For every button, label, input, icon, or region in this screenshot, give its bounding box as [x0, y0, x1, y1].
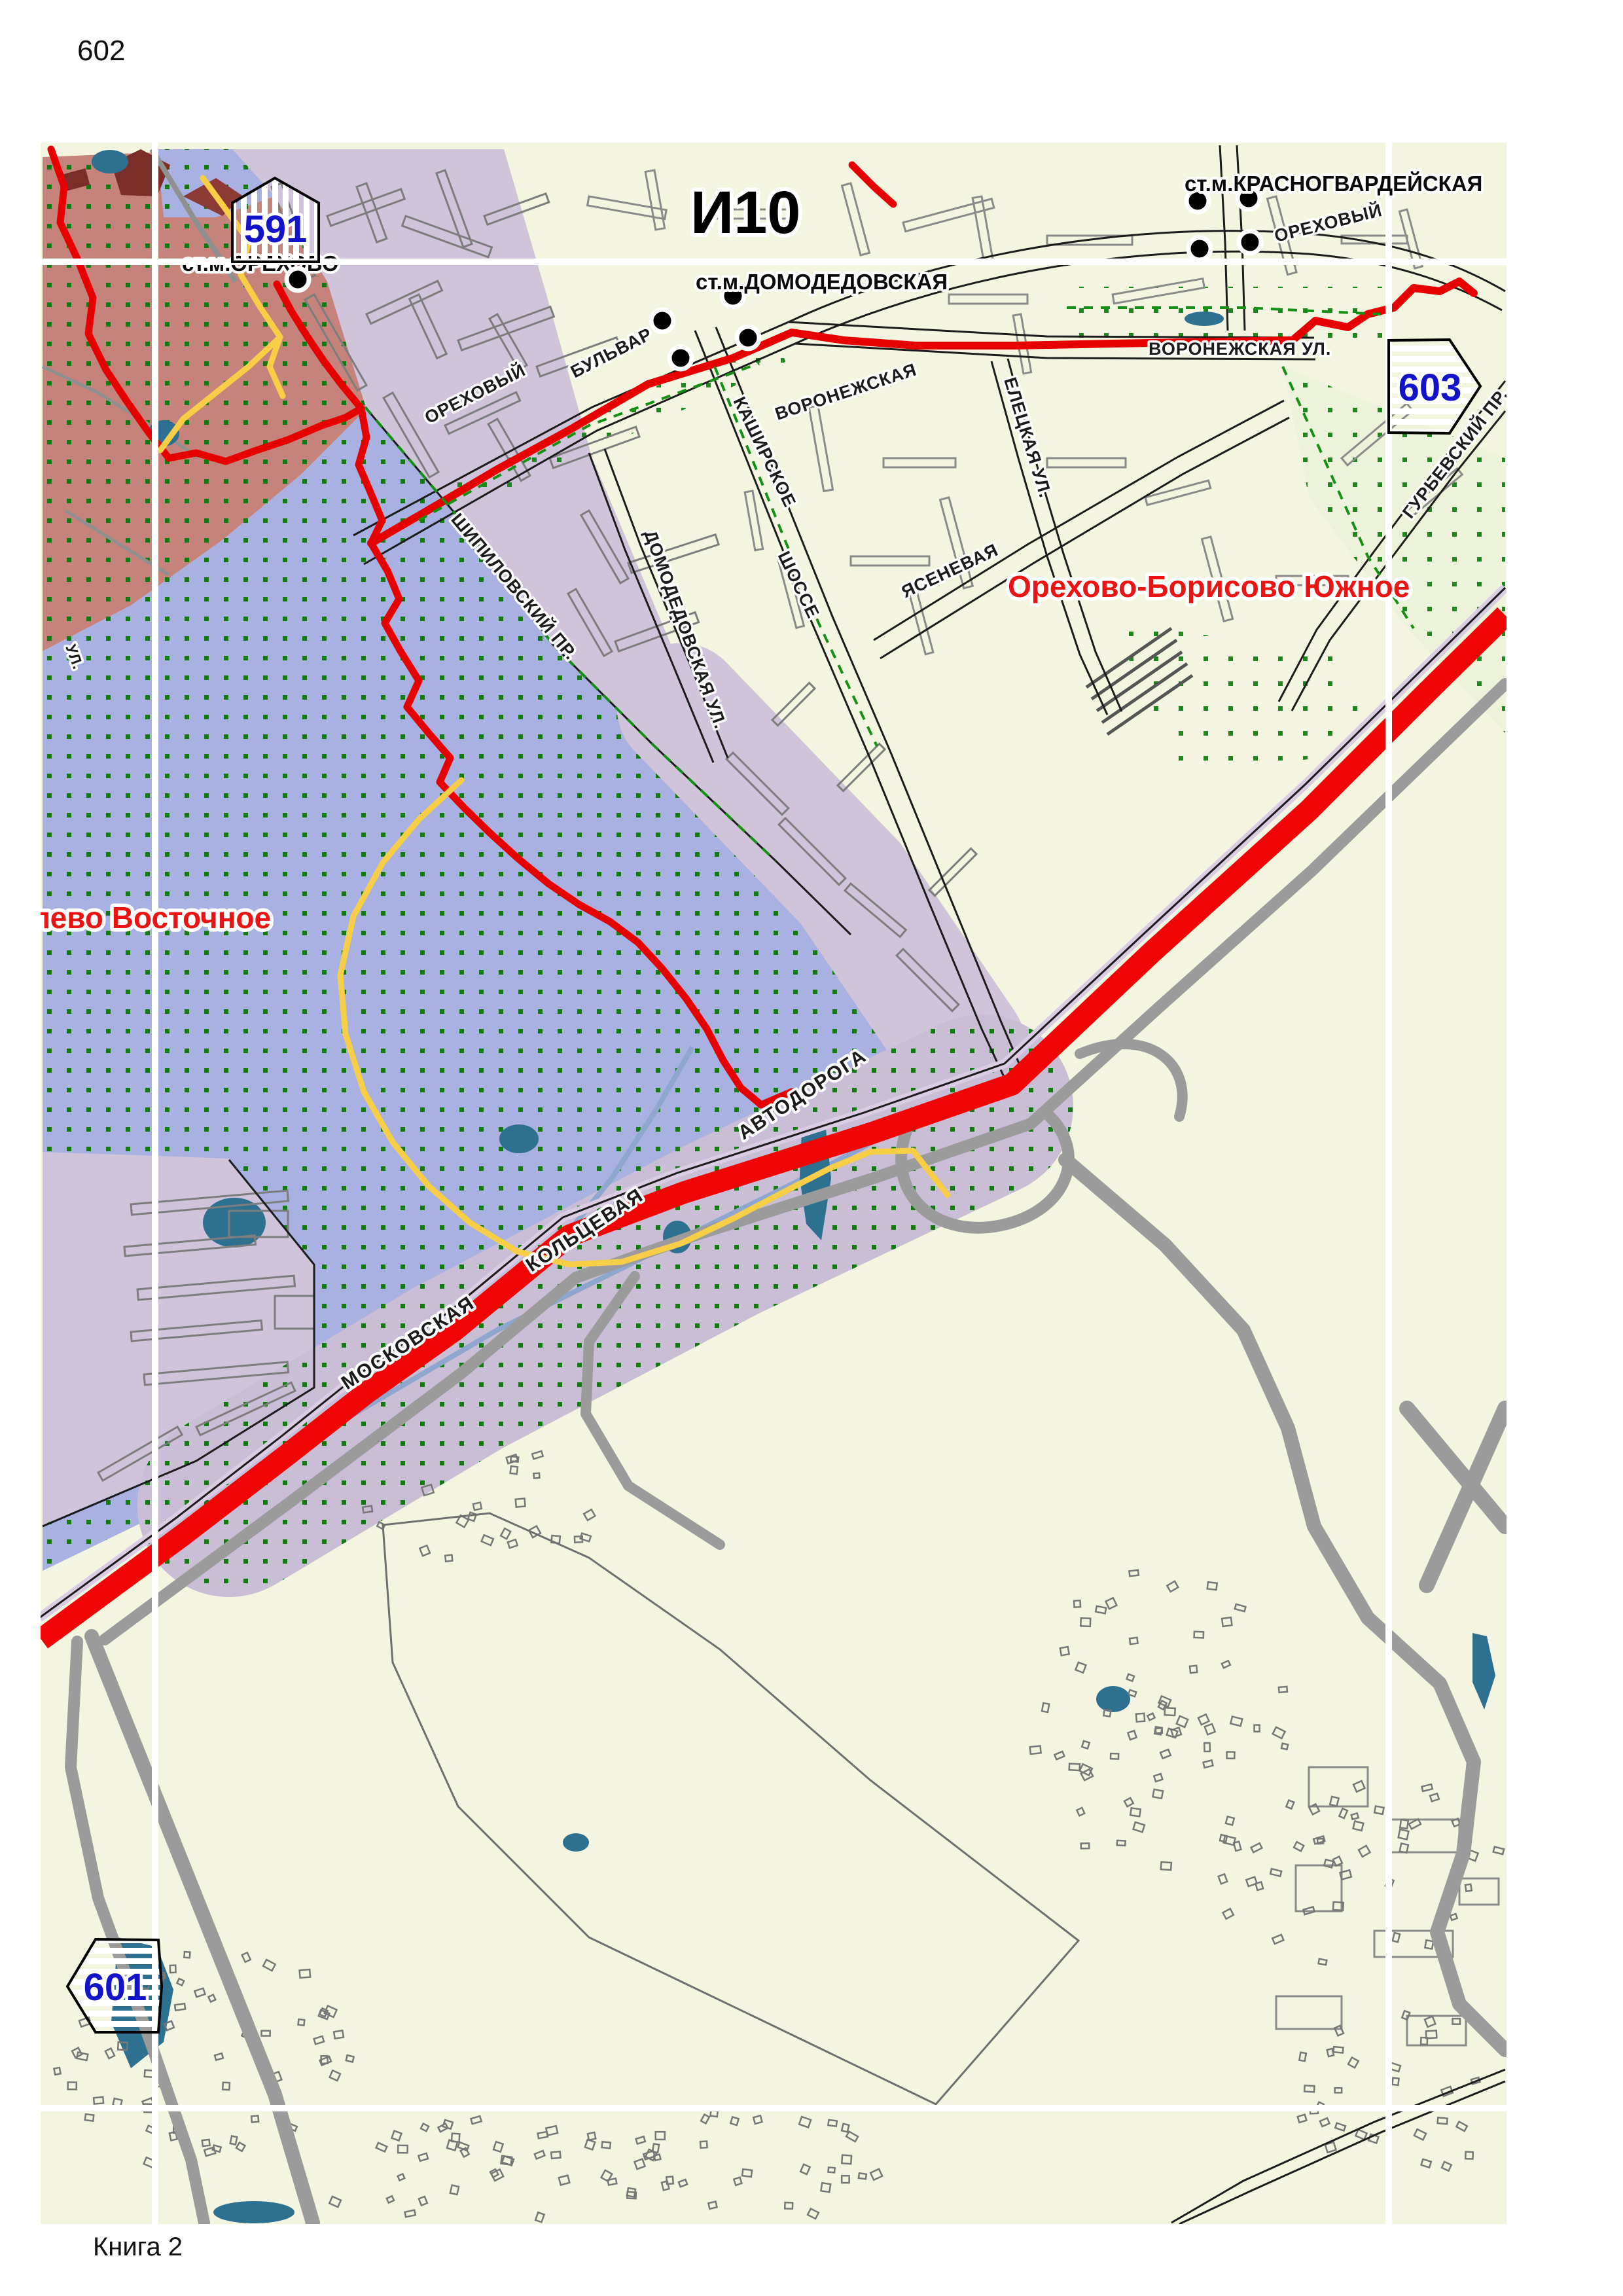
map-canvas: 602 Книга 2: [0, 0, 1623, 2296]
metro-label-domodedovskaya: ст.м.ДОМОДЕДОВСКАЯ: [696, 270, 948, 294]
grid-badge-603-number: 603: [1399, 367, 1462, 409]
page-number: 602: [77, 35, 125, 67]
grid-badge-591-number: 591: [244, 208, 308, 251]
book-label: Книга 2: [93, 2233, 183, 2261]
district-label-vostochnoe: лево Восточное: [31, 901, 271, 935]
atlas-page: { "page": { "number": "602", "book_label…: [0, 0, 1623, 2296]
metro-label-krasnogvardeyskaya: ст.м.КРАСНОГВАРДЕЙСКАЯ: [1185, 171, 1482, 196]
map-area: ст.м.ОРЕХОВО 591 603 601: [31, 143, 1512, 2224]
sheet-code-label: И10: [690, 179, 800, 246]
street-label-voronezhskaya-ul: ВОРОНЕЖСКАЯ УЛ.: [1149, 339, 1331, 359]
grid-badge-601-number: 601: [84, 1966, 147, 2009]
district-label-orekhovo-borisovo-yuzhnoe: Орехово-Борисово Южное: [1008, 569, 1410, 603]
